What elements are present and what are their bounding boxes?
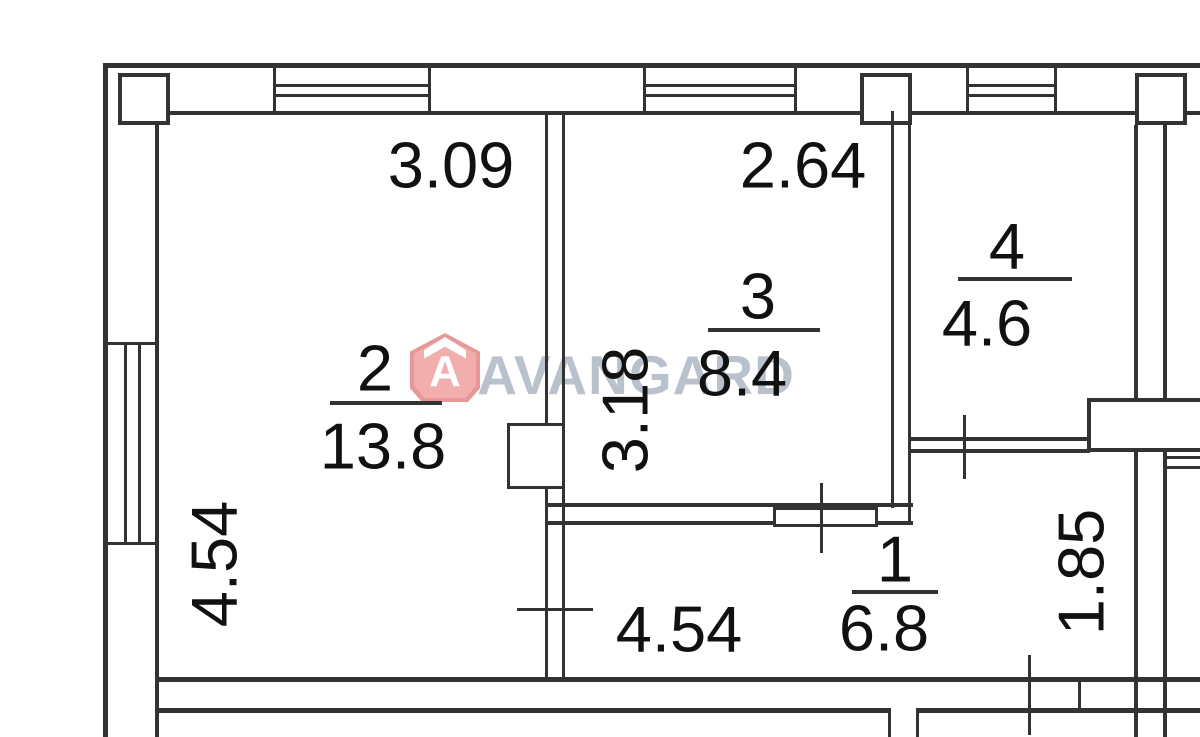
door-mark	[1028, 655, 1031, 735]
wall-right-inner	[1163, 452, 1167, 737]
opening-jamb	[916, 708, 919, 737]
room2-number: 2	[357, 336, 393, 401]
wall-top-inner	[155, 111, 1200, 115]
column	[118, 73, 170, 125]
wall-left-inner	[155, 111, 159, 737]
window3-glass-line	[966, 84, 1057, 87]
column	[1135, 73, 1187, 125]
dim-room2-height: 4.54	[182, 501, 247, 628]
room4-label-rule	[958, 277, 1072, 281]
wall-bottom-lower	[917, 708, 1200, 713]
room3-label-rule	[708, 328, 820, 332]
window1-jamb-right	[428, 63, 431, 115]
wall-left-outer	[103, 63, 108, 737]
window2-glass-line	[643, 84, 797, 87]
column	[860, 73, 912, 125]
wall-room4-bottom	[908, 449, 1090, 453]
window4-glass-line	[138, 344, 141, 544]
wall-right-inner	[1163, 125, 1167, 398]
room1-number: 1	[877, 527, 913, 592]
window3-glass-line	[966, 94, 1057, 97]
door-mark	[517, 608, 593, 611]
dim-room2-width: 3.09	[388, 133, 515, 198]
wall-bottom-lower	[155, 708, 890, 713]
wall-stub	[1078, 682, 1081, 708]
room3-area: 8.4	[697, 341, 787, 406]
wall-right-inner	[1134, 125, 1138, 398]
wall-room2-right	[562, 111, 565, 681]
window2-jamb-right	[794, 63, 797, 115]
wall-bottom-upper	[155, 677, 1200, 682]
dim-room3-width: 2.64	[740, 133, 867, 198]
wall-right-inner	[1134, 452, 1138, 737]
door-threshold	[773, 507, 878, 527]
window3-jamb-right	[1054, 63, 1057, 115]
window1-jamb-left	[273, 63, 276, 115]
room4-area: 4.6	[942, 291, 1032, 356]
wall-block	[1087, 398, 1200, 452]
window1-glass-line	[273, 94, 431, 97]
room2-label-rule	[330, 401, 442, 405]
window2-jamb-left	[643, 63, 646, 115]
wall-stub	[1165, 466, 1200, 469]
room3-number: 3	[740, 264, 776, 329]
brand-logo-icon: A	[410, 333, 480, 402]
wall-top-outer	[103, 63, 1200, 68]
floor-plan: A AVANGARD	[0, 0, 1200, 737]
window4-sill	[107, 542, 157, 545]
wall-room3-right	[908, 111, 911, 525]
window2-glass-line	[643, 94, 797, 97]
logo-letter: A	[410, 350, 480, 394]
door-mark	[820, 483, 823, 553]
dim-room3-height: 3.18	[593, 347, 658, 474]
window3-jamb-left	[966, 63, 969, 115]
door-mark	[963, 415, 966, 479]
wall-room2-right	[545, 111, 548, 681]
wall-stub	[1165, 456, 1200, 459]
wall-room3-right	[891, 111, 894, 508]
window4-glass-line	[124, 344, 127, 544]
dim-right-nook-height: 1.85	[1049, 509, 1114, 636]
room1-area: 6.8	[839, 596, 929, 661]
room2-area: 13.8	[320, 414, 447, 479]
shaft-niche	[507, 423, 565, 489]
dim-corridor-width: 4.54	[616, 597, 743, 662]
wall-room4-bottom	[908, 437, 1090, 441]
opening-jamb	[888, 708, 891, 737]
room4-number: 4	[989, 214, 1025, 279]
window4-head	[107, 342, 157, 345]
window1-glass-line	[273, 84, 431, 87]
